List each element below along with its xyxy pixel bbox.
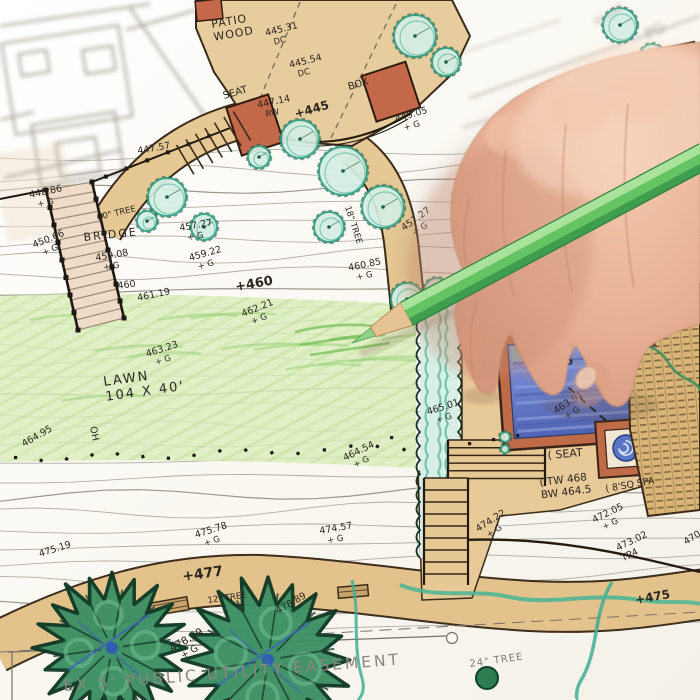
plan-drawing: PATIOWOOD445.31DC445.54DCSEAT447.14RW+44… [0,0,700,700]
utility-marker [447,633,458,644]
tree-marker-dot [476,667,498,689]
landscape-plan-photo: PATIOWOOD445.31DC445.54DCSEAT447.14RW+44… [0,0,700,700]
